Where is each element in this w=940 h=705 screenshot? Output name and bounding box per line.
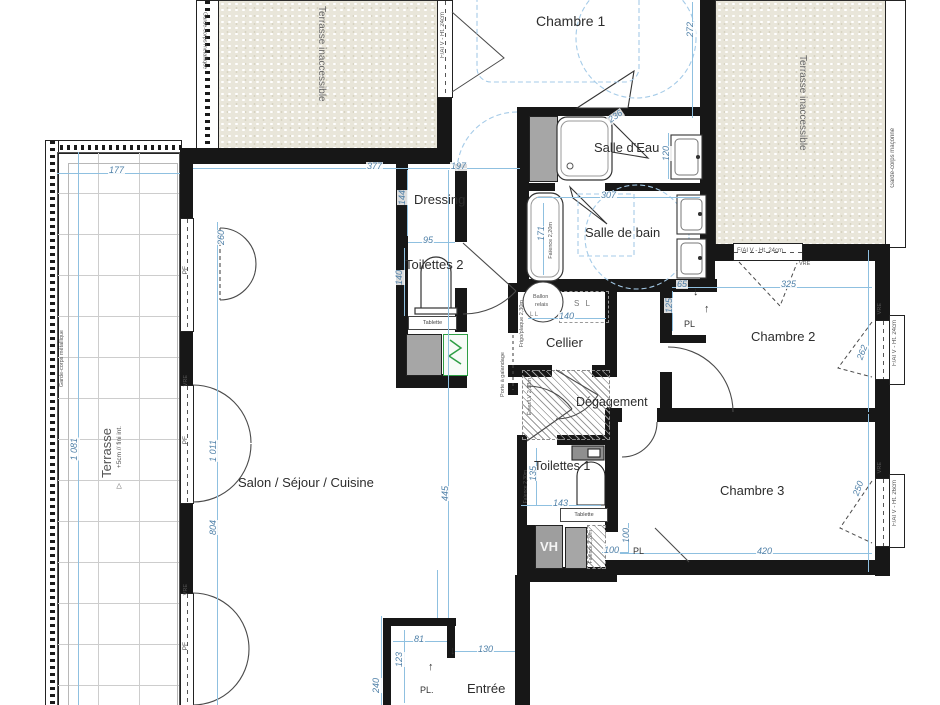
dim-label: 140 — [394, 270, 405, 285]
dim-label: 1 081 — [69, 438, 80, 461]
dim-label: 445 — [440, 486, 451, 501]
room-label-entree: Entrée — [467, 682, 505, 696]
dim-label: 65 — [676, 280, 688, 289]
water-heater-label-line2: relais — [535, 303, 548, 309]
dim-label: 100 — [603, 546, 620, 555]
dim-label: 272 — [685, 22, 696, 37]
dim-label: 143 — [552, 499, 569, 508]
arrow-up-icon: ↑ — [704, 304, 710, 315]
room-label-degagement: Dégagement — [576, 396, 648, 410]
dim-line — [448, 170, 449, 618]
plan-linework — [0, 0, 940, 705]
dim-label: 125 — [664, 298, 675, 313]
electrical-zigzag-icon — [449, 340, 461, 364]
tile-height-note-vh: Faïence 2,20m — [589, 530, 594, 563]
dim-label: 307 — [600, 191, 617, 200]
room-label-cellier: Cellier — [546, 336, 583, 350]
dim-label: 804 — [208, 520, 219, 535]
dim-label: 177 — [108, 166, 125, 175]
dim-label: 260 — [216, 230, 227, 245]
dim-label: 171 — [536, 226, 547, 241]
closet-pl-chambre2: PL — [684, 320, 695, 330]
room-label-salle-de-bain: Salle de bain — [585, 226, 660, 240]
dim-label: 197 — [450, 162, 467, 171]
room-label-chambre2: Chambre 2 — [751, 330, 815, 344]
dim-line — [537, 197, 700, 198]
dryer-slot-label: S L — [574, 300, 592, 308]
kitchen-fridge-note: Frigo/plaque 2,30m — [520, 300, 526, 347]
dim-label: 95 — [422, 236, 434, 245]
pocket-door-note: Porte à galandage — [501, 352, 507, 397]
closet-pl-entree: PL. — [420, 686, 434, 696]
room-label-chambre3: Chambre 3 — [720, 484, 784, 498]
room-label-salle-eau: Salle d'Eau — [594, 141, 659, 155]
dim-line — [692, 2, 693, 118]
terrace-door-arcs — [193, 228, 256, 705]
dim-label: 420 — [756, 547, 773, 556]
dim-label: 81 — [413, 635, 425, 644]
arrow-down-icon: ↓ — [693, 287, 699, 298]
dim-line — [672, 287, 872, 288]
dim-label: 140 — [558, 312, 575, 321]
closet-pl-chambre3: PL — [633, 547, 644, 557]
dim-label: 100 — [621, 528, 632, 543]
dim-line — [193, 168, 520, 169]
room-label-chambre1: Chambre 1 — [536, 14, 605, 29]
dim-label: 325 — [780, 280, 797, 289]
dim-label: 120 — [661, 146, 672, 161]
dim-line — [217, 222, 218, 705]
room-label-dressing: Dressing — [414, 193, 465, 207]
room-label-toilettes2: Toilettes 2 — [405, 258, 464, 272]
dim-label: 1 011 — [208, 440, 219, 462]
toilet-toilettes1 — [572, 446, 605, 505]
room-label-toilettes1: Toilettes 1 — [534, 460, 590, 474]
water-heater-label-line1: Ballon — [533, 295, 548, 301]
kitchen-sink-note: Évier/LV 2,13m — [528, 378, 534, 415]
dim-label: 144 — [397, 190, 408, 205]
washer-slot-label: L L — [530, 312, 538, 318]
dim-line — [868, 414, 869, 572]
sinks — [671, 135, 706, 278]
dim-label: 240 — [371, 678, 382, 693]
arrow-down-icon: ↓ — [450, 646, 456, 657]
dim-line — [868, 250, 869, 412]
dim-line — [618, 553, 872, 554]
arrow-up-icon: ↑ — [428, 662, 434, 673]
room-label-salon: Salon / Séjour / Cuisine — [238, 476, 374, 490]
floor-plan: Terrasse inaccessible Garde-corps métall… — [0, 0, 940, 705]
dim-label: 123 — [394, 652, 405, 667]
dim-line — [437, 570, 438, 618]
tile-height-note-wc1: Faïence 2,30m — [524, 470, 529, 503]
dim-line — [78, 152, 79, 705]
tile-height-note-bath: Faïence 2,20m — [549, 222, 555, 259]
dim-label: 377 — [366, 162, 383, 171]
dim-label: 130 — [477, 645, 494, 654]
